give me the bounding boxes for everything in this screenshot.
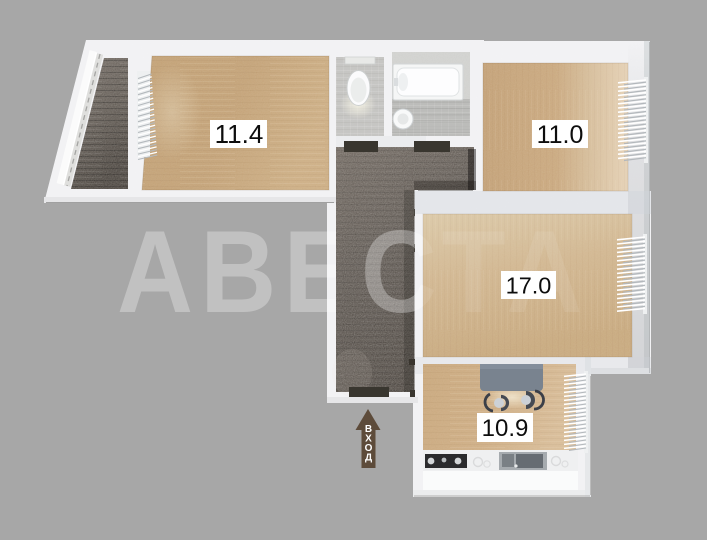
svg-text:Д: Д: [365, 453, 372, 464]
svg-text:17.0: 17.0: [506, 273, 552, 299]
svg-text:10.9: 10.9: [482, 415, 529, 442]
svg-text:11.4: 11.4: [215, 119, 264, 149]
svg-text:11.0: 11.0: [537, 121, 584, 149]
